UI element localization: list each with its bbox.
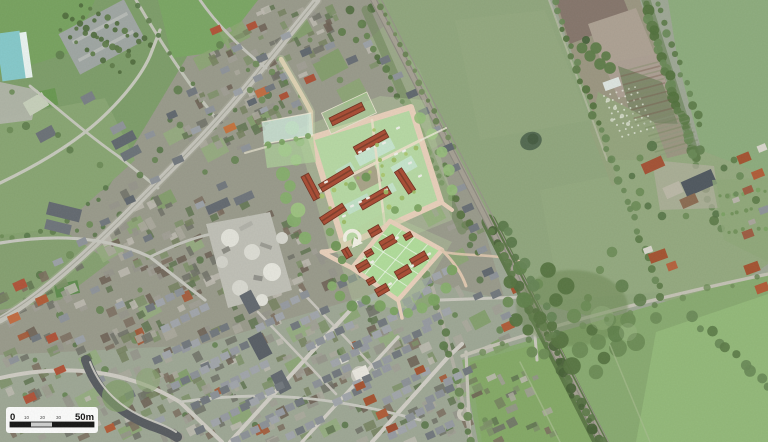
svg-text:0: 0 bbox=[10, 412, 15, 423]
svg-text:30: 30 bbox=[56, 415, 62, 420]
svg-text:20: 20 bbox=[40, 415, 46, 420]
svg-text:50m: 50m bbox=[75, 412, 94, 423]
svg-text:10: 10 bbox=[24, 415, 30, 420]
